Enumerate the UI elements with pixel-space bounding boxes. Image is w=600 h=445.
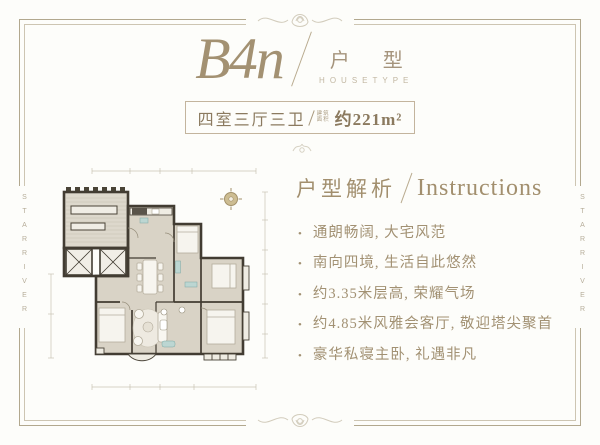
analysis-heading-cn: 户型解析 — [296, 173, 396, 203]
unit-type-block: 户 型 HOUSETYPE — [316, 34, 417, 85]
shelf-unit — [71, 206, 117, 214]
bullet-dot-icon: • — [298, 319, 303, 331]
floorplan-svg — [44, 162, 294, 395]
bottom-flourish-ornament — [246, 408, 354, 439]
rooms-label: 四室三厅三卫 — [198, 106, 306, 130]
area-prefix-line2: 面积 — [317, 118, 330, 124]
analysis-heading: 户型解析 Instructions — [296, 172, 562, 204]
floorplan — [44, 162, 294, 395]
analysis-bullet: • 通朗畅阔, 大宅风范 — [298, 226, 562, 242]
bullet-dot-icon: • — [298, 350, 303, 362]
bullet-text: 豪华私寝主卧, 礼遇非凡 — [313, 348, 477, 364]
bullet-text: 南向四境, 生活自此悠然 — [313, 256, 477, 272]
bullet-text: 约3.35米层高, 荣耀气场 — [313, 287, 476, 303]
bullet-text: 约4.85米风雅会客厅, 敬迎塔尖聚首 — [313, 317, 553, 333]
unit-type-label-cn: 户 型 — [316, 44, 417, 73]
dining-table — [137, 260, 163, 294]
shelf-unit — [71, 223, 105, 230]
watermark-left: STARRIVER — [14, 186, 28, 328]
analysis-section: 户型解析 Instructions • 通朗畅阔, 大宅风范 • 南向四境, 生… — [296, 172, 562, 378]
analysis-heading-en: Instructions — [417, 175, 542, 202]
bullet-dot-icon: • — [298, 258, 303, 270]
watermark-right: STARRIVER — [572, 186, 586, 328]
unit-type-label-en: HOUSETYPE — [319, 76, 413, 85]
plan-code-title: B4n — [195, 30, 286, 88]
area-value: 约221m² — [335, 105, 403, 130]
analysis-bullet: • 豪华私寝主卧, 礼遇非凡 — [298, 348, 562, 364]
header-slash-divider — [291, 32, 312, 87]
bullet-dot-icon: • — [298, 289, 303, 301]
analysis-bullet: • 南向四境, 生活自此悠然 — [298, 256, 562, 272]
heading-slash-divider — [401, 173, 413, 203]
area-info-box: 四室三厅三卫 建筑 面积 约221m² — [185, 101, 415, 134]
analysis-bullet: • 约3.35米层高, 荣耀气场 — [298, 287, 562, 303]
elevator-shafts — [66, 249, 126, 275]
analysis-bullet-list: • 通朗畅阔, 大宅风范 • 南向四境, 生活自此悠然 • 约3.35米层高, … — [298, 226, 562, 364]
compass-icon — [220, 188, 242, 210]
mid-flourish-ornament — [291, 139, 313, 160]
header: B4n 户 型 HOUSETYPE — [6, 30, 600, 88]
area-slash-divider — [308, 110, 314, 125]
area-prefix-label: 建筑 面积 — [317, 112, 330, 124]
brochure-card: STARRIVER STARRIVER B4n 户 型 HOUSETYPE 四室… — [0, 0, 600, 445]
bullet-dot-icon: • — [298, 228, 303, 240]
analysis-bullet: • 约4.85米风雅会客厅, 敬迎塔尖聚首 — [298, 317, 562, 333]
bullet-text: 通朗畅阔, 大宅风范 — [313, 226, 446, 242]
